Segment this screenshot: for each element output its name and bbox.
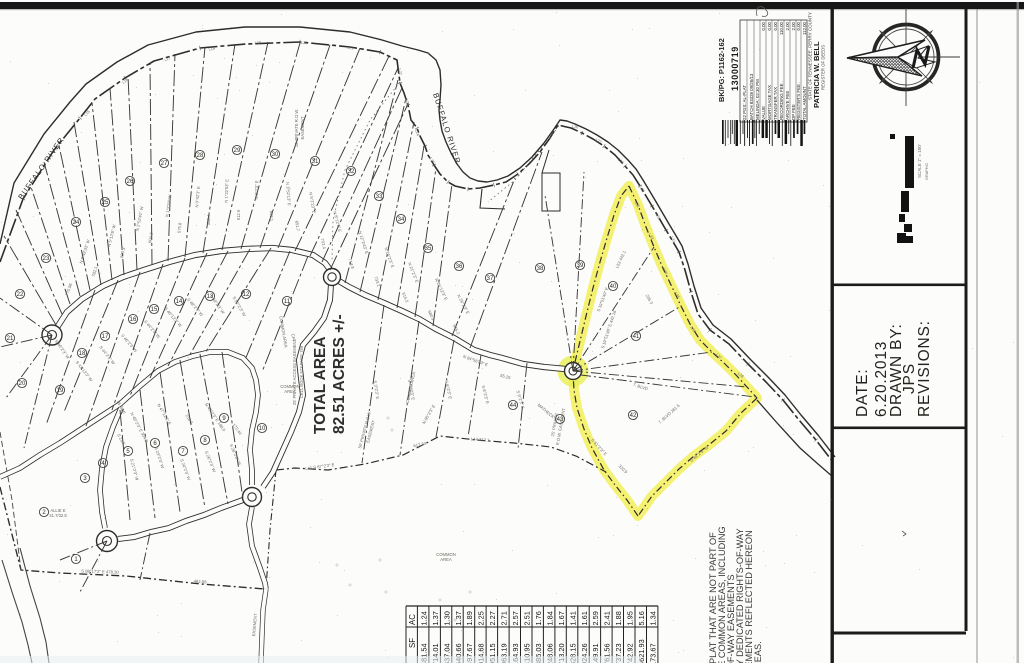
svg-text:TOTAL AREA: TOTAL AREA <box>312 336 329 434</box>
svg-text:1.34: 1.34 <box>649 611 658 625</box>
svg-text:REVISIONS:: REVISIONS: <box>916 320 933 417</box>
svg-text:35: 35 <box>425 246 432 252</box>
svg-text:TRANSFER TAX: TRANSFER TAX <box>773 87 778 120</box>
svg-text:37: 37 <box>487 276 494 282</box>
svg-text:44: 44 <box>510 403 517 409</box>
svg-text:1.88: 1.88 <box>614 611 623 625</box>
svg-text:18: 18 <box>79 351 86 357</box>
svg-text:39: 39 <box>577 263 584 269</box>
svg-text:82.51 ACRES +/-: 82.51 ACRES +/- <box>331 314 348 434</box>
svg-text:14: 14 <box>176 299 183 305</box>
svg-text:2.59: 2.59 <box>591 611 600 625</box>
svg-text:1.24: 1.24 <box>419 611 428 625</box>
svg-text:N 1°22'53" E: N 1°22'53" E <box>224 179 230 203</box>
svg-text:2.57: 2.57 <box>511 611 520 625</box>
svg-text:32: 32 <box>348 169 355 175</box>
svg-text:10: 10 <box>259 426 266 432</box>
svg-text:0.00: 0.00 <box>761 21 766 30</box>
svg-text:25' PRIVATE ACCESS EASEMENT: 25' PRIVATE ACCESS EASEMENT <box>292 338 297 405</box>
svg-text:DATE:: DATE: <box>854 369 871 418</box>
svg-text:31: 31 <box>312 159 319 165</box>
svg-text:30: 30 <box>272 152 279 158</box>
svg-text:41: 41 <box>633 334 640 340</box>
svg-text:31.7/32.8: 31.7/32.8 <box>49 513 67 518</box>
svg-text:24: 24 <box>73 220 80 226</box>
svg-text:27: 27 <box>161 161 168 167</box>
svg-text:36: 36 <box>456 264 463 270</box>
svg-text:588.4: 588.4 <box>206 214 212 225</box>
svg-text:20: 20 <box>19 381 26 387</box>
svg-text:22 PGS: AL-PLAT: 22 PGS: AL-PLAT <box>742 85 747 120</box>
svg-text:RECORDING FEE: RECORDING FEE <box>779 83 784 120</box>
svg-text:110.00: 110.00 <box>779 21 784 35</box>
svg-text:1.37: 1.37 <box>454 611 463 625</box>
svg-text:EASEMENT: EASEMENT <box>300 116 305 139</box>
svg-text:1.89: 1.89 <box>465 611 474 625</box>
svg-text:2.25: 2.25 <box>477 611 486 625</box>
svg-text:N 2°2'3" E: N 2°2'3" E <box>254 180 259 199</box>
svg-text:34: 34 <box>398 217 405 223</box>
svg-text:AREA: AREA <box>440 557 452 562</box>
svg-text:484.98: 484.98 <box>194 579 208 585</box>
svg-text:173.67: 173.67 <box>649 643 658 663</box>
svg-text:2.41: 2.41 <box>603 611 612 625</box>
svg-text:L20: L20 <box>301 41 308 45</box>
svg-text:BATCH 83328 09/26/13: BATCH 83328 09/26/13 <box>749 73 754 120</box>
svg-text:13000719: 13000719 <box>730 46 740 91</box>
svg-text:21: 21 <box>7 336 14 342</box>
svg-text:0.00: 0.00 <box>767 21 772 30</box>
svg-text:12: 12 <box>243 292 250 298</box>
svg-text:11: 11 <box>284 299 291 305</box>
svg-text:L19: L19 <box>255 41 262 45</box>
svg-text:25' PRIVATE R.O.W.: 25' PRIVATE R.O.W. <box>294 109 299 148</box>
svg-text:MORTGAGE TAX: MORTGAGE TAX <box>767 85 772 120</box>
svg-text:38: 38 <box>537 266 544 272</box>
svg-text:1.41: 1.41 <box>568 611 577 625</box>
svg-text:SF: SF <box>408 638 417 648</box>
svg-text:REGISTER'S FEE: REGISTER'S FEE <box>796 84 801 120</box>
svg-text:2.51: 2.51 <box>523 611 532 625</box>
svg-text:633.1: 633.1 <box>269 211 275 222</box>
svg-text:28: 28 <box>197 153 204 159</box>
svg-text:23: 23 <box>43 256 50 262</box>
svg-text:MELINDA: 02:30 PM: MELINDA: 02:30 PM <box>755 79 760 120</box>
svg-text:26: 26 <box>127 179 134 185</box>
svg-text:19: 19 <box>57 388 64 394</box>
svg-text:29: 29 <box>234 148 241 154</box>
svg-text:1.30: 1.30 <box>442 611 451 625</box>
svg-text:16: 16 <box>130 317 137 323</box>
svg-text:BK/PG: P1162-162: BK/PG: P1162-162 <box>717 38 726 102</box>
svg-text:1.95: 1.95 <box>626 611 635 625</box>
svg-text:2.00: 2.00 <box>785 21 790 30</box>
svg-text:CELL BOOK 523 PAGE 769: CELL BOOK 523 PAGE 769 <box>299 345 304 398</box>
svg-text:ARCHIVE FEE: ARCHIVE FEE <box>785 91 790 120</box>
svg-text:2.71: 2.71 <box>500 611 509 625</box>
svg-text:5.16: 5.16 <box>637 611 646 625</box>
svg-text:2.27: 2.27 <box>488 611 497 625</box>
svg-text:612.9: 612.9 <box>236 209 241 220</box>
svg-text:AREA: AREA <box>284 389 296 394</box>
svg-text:25: 25 <box>102 200 109 206</box>
svg-text:15: 15 <box>151 307 158 313</box>
svg-text:TOTAL AMOUNT: TOTAL AMOUNT <box>802 86 807 120</box>
svg-text:42: 42 <box>630 413 637 419</box>
svg-text:22: 22 <box>17 292 24 298</box>
svg-text:33: 33 <box>376 194 383 200</box>
svg-text:SCALE 1" = 100': SCALE 1" = 100' <box>917 144 922 178</box>
svg-text:40: 40 <box>610 284 617 290</box>
svg-text:AC: AC <box>408 614 417 625</box>
svg-text:0.00: 0.00 <box>773 21 778 30</box>
svg-text:GRAPHIC: GRAPHIC <box>925 162 929 180</box>
svg-text:REGISTER OF DEEDS: REGISTER OF DEEDS <box>821 45 826 90</box>
svg-text:1.61: 1.61 <box>580 611 589 625</box>
svg-text:1.84: 1.84 <box>545 611 554 625</box>
svg-text:1.76: 1.76 <box>534 611 543 625</box>
svg-text:1.37: 1.37 <box>431 611 440 625</box>
svg-text:112.00: 112.00 <box>802 21 807 35</box>
svg-text:0.00: 0.00 <box>796 21 801 30</box>
svg-text:AREAS.: AREAS. <box>753 641 763 663</box>
svg-text:VALUE: VALUE <box>761 106 766 120</box>
svg-text:1.67: 1.67 <box>557 611 566 625</box>
svg-text:17: 17 <box>102 334 109 340</box>
